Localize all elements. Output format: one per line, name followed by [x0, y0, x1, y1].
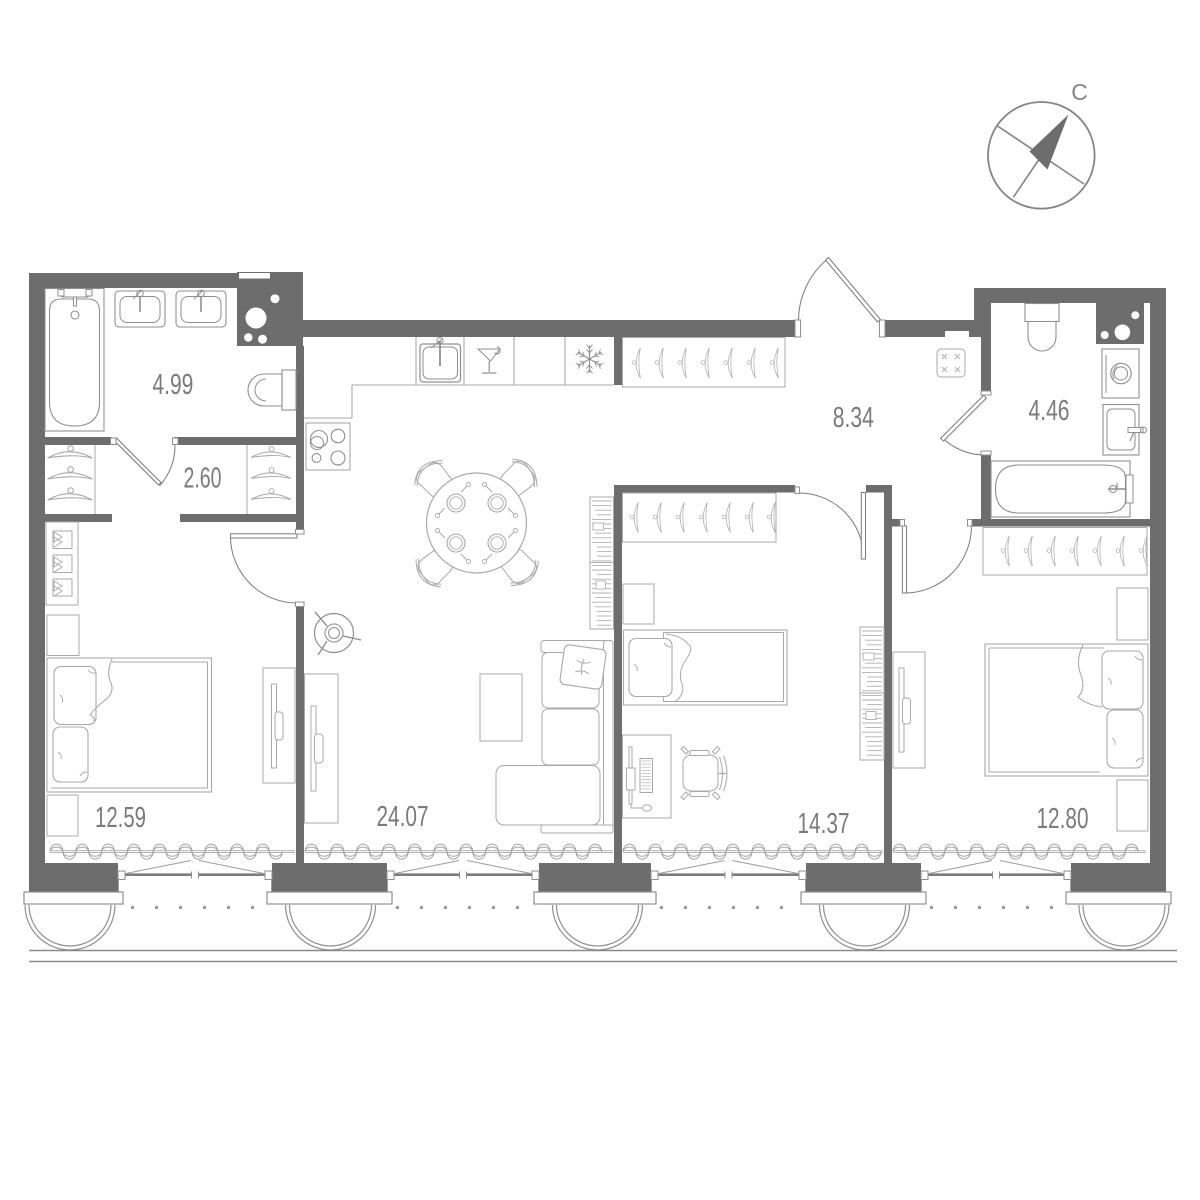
svg-text:12.59: 12.59: [95, 802, 146, 834]
svg-text:4.99: 4.99: [152, 369, 193, 401]
svg-text:12.80: 12.80: [1037, 803, 1089, 835]
svg-text:24.07: 24.07: [377, 801, 429, 833]
svg-text:2.60: 2.60: [184, 463, 222, 495]
svg-text:4.46: 4.46: [1029, 395, 1070, 427]
svg-text:8.34: 8.34: [833, 402, 874, 434]
svg-text:14.37: 14.37: [798, 808, 850, 840]
svg-text:С: С: [1071, 79, 1088, 105]
